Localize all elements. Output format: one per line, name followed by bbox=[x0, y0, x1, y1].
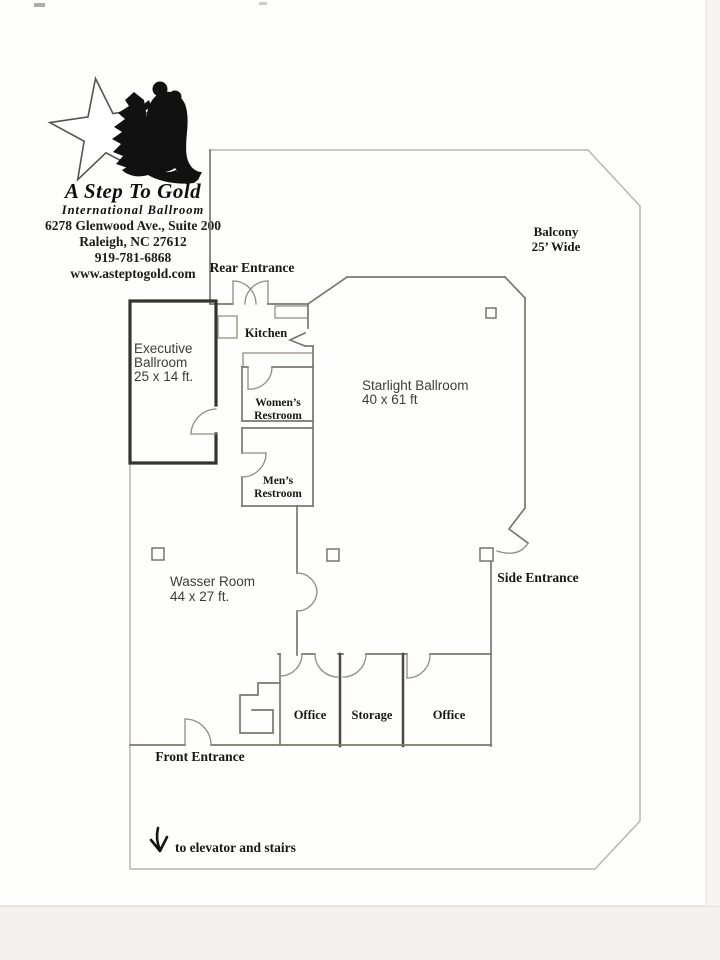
logo-address-line1: 6278 Glenwood Ave., Suite 200 bbox=[45, 218, 221, 233]
balcony-width-label: 25’ Wide bbox=[532, 239, 581, 254]
mens-restroom-label-2: Restroom bbox=[254, 488, 302, 500]
logo-phone: 919-781-6868 bbox=[95, 250, 172, 265]
column-ballroom bbox=[486, 308, 496, 318]
starlight-ballroom-label: Starlight Ballroom bbox=[362, 378, 469, 393]
office-left-label: Office bbox=[294, 708, 327, 722]
kitchen-label: Kitchen bbox=[245, 326, 287, 340]
front-door-arc bbox=[185, 719, 211, 745]
scan-right-band bbox=[706, 0, 720, 906]
kitchen-bevel-wall bbox=[308, 277, 347, 304]
column-side-entrance bbox=[480, 548, 493, 561]
vestibule-door-arc bbox=[280, 654, 302, 676]
kitchen-angled-door bbox=[290, 333, 305, 346]
wasser-door-arc-top bbox=[297, 573, 317, 592]
kitchen-counter-top bbox=[275, 306, 308, 318]
elevator-note-label: to elevator and stairs bbox=[175, 840, 296, 855]
balcony-label: Balcony bbox=[534, 224, 579, 239]
room-labels: Rear Entrance Balcony 25’ Wide Kitchen E… bbox=[134, 224, 581, 855]
dancing-couple-icon bbox=[112, 82, 202, 184]
logo-website: www.asteptogold.com bbox=[70, 266, 196, 281]
wasser-room-dims: 44 x 27 ft. bbox=[170, 589, 229, 604]
front-closet-steps bbox=[240, 683, 280, 733]
side-entrance-door bbox=[509, 508, 528, 543]
floorplan-page: A Step To Gold International Ballroom 62… bbox=[0, 0, 720, 960]
executive-ballroom-dims: 25 x 14 ft. bbox=[134, 369, 193, 384]
womens-restroom-label-1: Women’s bbox=[255, 397, 301, 409]
storage-door-arc bbox=[343, 654, 366, 677]
elevator-note: to elevator and stairs bbox=[151, 828, 296, 855]
floorplan-svg: A Step To Gold International Ballroom 62… bbox=[0, 0, 720, 960]
down-arrow-icon bbox=[151, 828, 167, 851]
ballroom-top-right-bevel bbox=[505, 277, 525, 298]
wasser-door-arc-bottom bbox=[297, 592, 317, 611]
office-right-door-arc bbox=[407, 654, 430, 678]
logo-name: A Step To Gold bbox=[63, 179, 201, 203]
kitchen-lower-counter bbox=[243, 353, 313, 367]
executive-ballroom-label-1: Executive bbox=[134, 341, 193, 356]
column-wasser-left bbox=[152, 548, 164, 560]
executive-door-arc bbox=[191, 409, 216, 434]
executive-closet bbox=[218, 316, 237, 338]
rear-door-arc-right bbox=[245, 281, 268, 304]
front-entrance-label: Front Entrance bbox=[155, 749, 244, 764]
mens-door-arc bbox=[242, 453, 266, 477]
side-entrance-label: Side Entrance bbox=[497, 570, 578, 585]
executive-ballroom-label-2: Ballroom bbox=[134, 355, 187, 370]
logo: A Step To Gold International Ballroom 62… bbox=[45, 79, 221, 282]
starlight-ballroom-dims: 40 x 61 ft bbox=[362, 392, 418, 407]
mens-restroom-label-1: Men’s bbox=[263, 475, 294, 487]
logo-subtitle: International Ballroom bbox=[61, 203, 205, 217]
wasser-room-label: Wasser Room bbox=[170, 574, 255, 589]
rear-door-arc-left bbox=[233, 281, 256, 304]
office-right-label: Office bbox=[433, 708, 466, 722]
column-wasser-right bbox=[327, 549, 339, 561]
scan-speck-2 bbox=[259, 2, 267, 5]
womens-door-arc bbox=[248, 367, 272, 389]
side-entrance-arc bbox=[497, 543, 528, 553]
restroom-divider-wall bbox=[242, 421, 313, 428]
scan-bottom-band bbox=[0, 906, 720, 960]
office-left-door-arc bbox=[315, 654, 338, 677]
scan-speck-1 bbox=[34, 3, 45, 7]
logo-address-line2: Raleigh, NC 27612 bbox=[79, 234, 187, 249]
rear-entrance-label: Rear Entrance bbox=[210, 260, 295, 275]
storage-label: Storage bbox=[352, 708, 393, 722]
womens-restroom-label-2: Restroom bbox=[254, 410, 302, 422]
